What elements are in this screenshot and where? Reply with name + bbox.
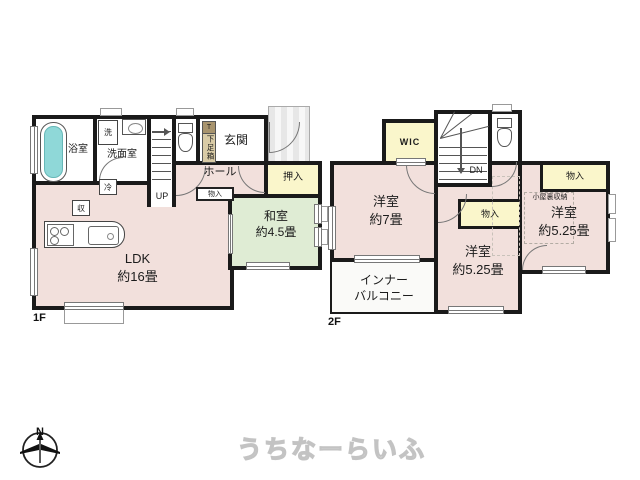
label-entrance: 玄関 — [208, 132, 264, 148]
window — [542, 266, 586, 274]
window — [396, 158, 426, 166]
stairs-dn-label: DN — [462, 164, 490, 176]
closet-monoire-1f: 物入 — [196, 187, 234, 201]
fridge-box: 冷 — [99, 179, 117, 195]
floor-label-1f: 1F — [33, 312, 46, 324]
label-yoshitsu7: 洋室約7畳 — [338, 190, 434, 232]
label-hall: ホール — [180, 164, 260, 180]
label-inner-balcony: インナーバルコニー — [336, 268, 432, 308]
stairs-arrow-head-1f — [164, 128, 170, 136]
label-yoshitsu525-right: 洋室約5.25畳 — [520, 202, 608, 242]
window — [30, 126, 38, 174]
label-monoire-right: 物入 — [544, 167, 606, 185]
storage-box: 収 — [72, 200, 90, 216]
window — [64, 302, 124, 310]
compass-icon: N — [12, 418, 68, 474]
window-bump — [608, 194, 616, 214]
label-washroom: 洗面室 — [94, 148, 150, 162]
window-bay — [64, 309, 124, 324]
label-bath: 浴室 — [58, 143, 98, 157]
label-wic: WIC — [386, 135, 434, 149]
window — [448, 306, 504, 314]
window-bump — [492, 104, 512, 112]
sliding-door-washitsu — [228, 214, 233, 254]
label-oshiire: 押入 — [266, 170, 320, 186]
washbasin-icon — [122, 119, 146, 135]
label-washitsu: 和室約4.5畳 — [234, 203, 318, 245]
toilet-icon-2f — [497, 118, 511, 148]
window-bump — [608, 218, 616, 242]
floor-label-2f: 2F — [328, 316, 341, 328]
window-bump — [176, 108, 194, 116]
floor-plan-canvas: UP 洗 T 下足箱 冷 収 物入 — [0, 0, 640, 480]
window — [354, 255, 420, 263]
window-bump — [321, 229, 328, 245]
window-bump — [100, 108, 122, 116]
toilet-icon-1f — [178, 123, 192, 153]
label-yoshitsu525-center: 洋室約5.25畳 — [436, 240, 520, 282]
window — [246, 262, 290, 270]
laundry-box: 洗 — [98, 120, 118, 145]
kitchen-counter — [44, 221, 125, 248]
kitchen-sink-icon — [88, 226, 119, 245]
site-watermark: うちなーらいふ — [237, 430, 426, 466]
label-ldk: LDK約16畳 — [85, 248, 190, 288]
window — [328, 206, 336, 250]
label-monoire-center: 物入 — [460, 205, 520, 223]
stairs-up-label: UP — [148, 190, 176, 202]
window-bump — [321, 206, 328, 222]
stove-icon — [47, 224, 74, 246]
window — [30, 248, 38, 296]
